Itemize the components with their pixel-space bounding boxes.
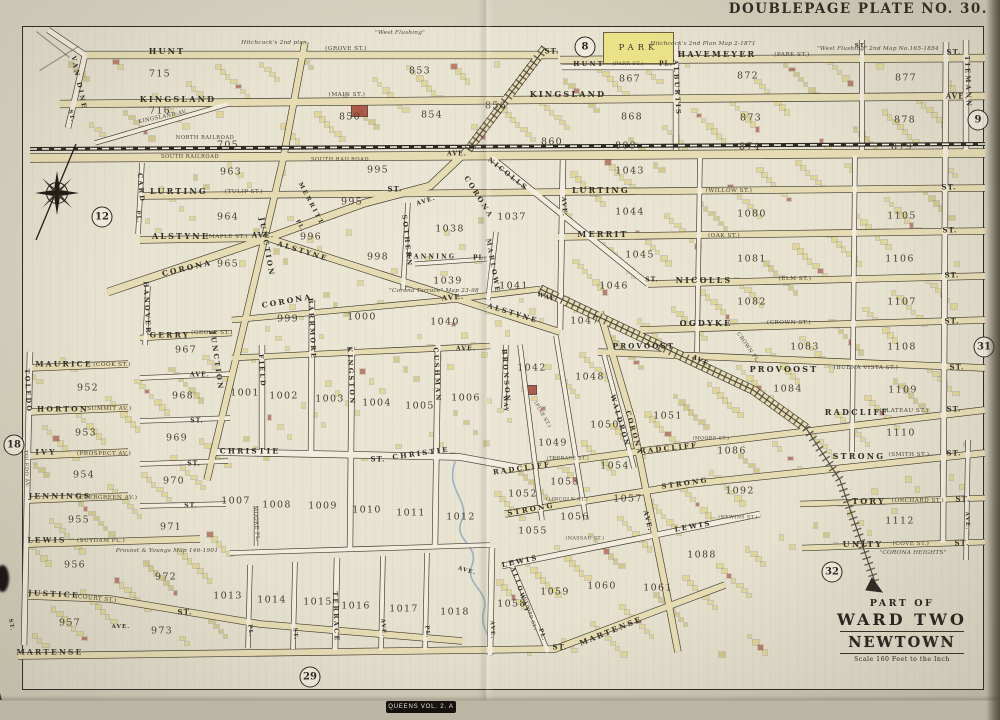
scan-vignette — [0, 0, 1000, 720]
photo-right-edge — [986, 0, 1000, 720]
sheet-bottom-edge — [0, 700, 1000, 720]
atlas-plate-scan: DOUBLEPAGE PLATE NO. 30. PARK HUNT(GROVE… — [0, 0, 1000, 720]
volume-label: QUEENS VOL. 2. A — [386, 701, 456, 713]
